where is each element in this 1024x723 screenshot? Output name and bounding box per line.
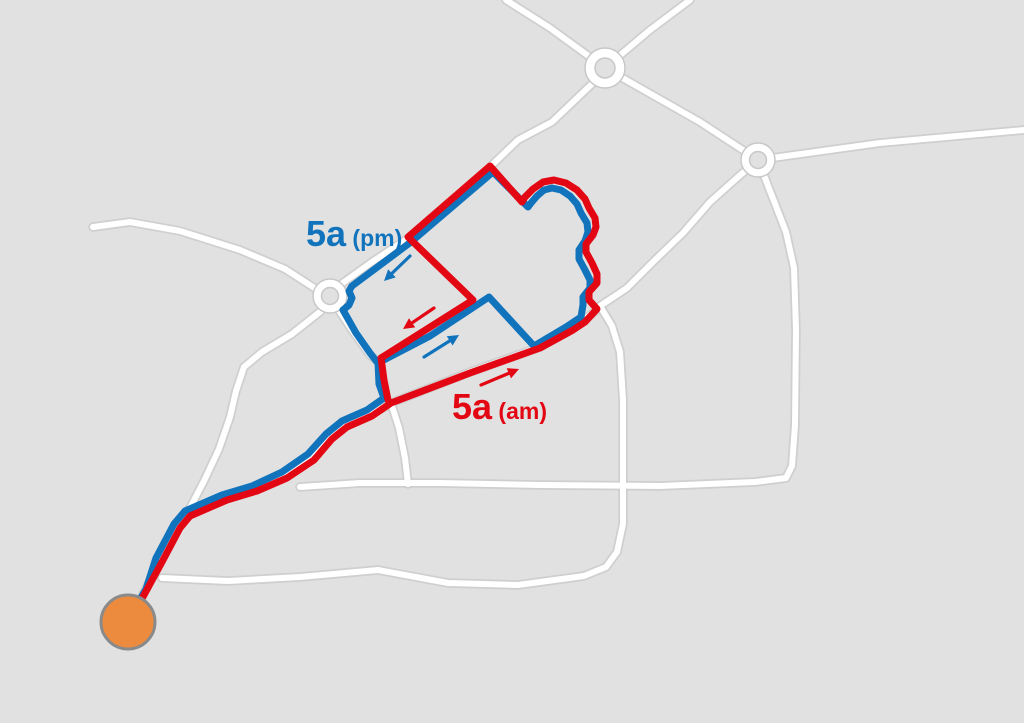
label-5a-am-main: 5a <box>452 386 493 427</box>
roundabout-left-island <box>322 288 339 305</box>
terminus-marker <box>101 595 155 649</box>
route-map: 5a (pm)5a (am) <box>0 0 1024 723</box>
label-5a-am-sub: (am) <box>492 398 547 424</box>
map-canvas: 5a (pm)5a (am) <box>0 0 1024 723</box>
label-5a-pm-main: 5a <box>306 213 347 254</box>
roundabout-right-island <box>750 152 767 169</box>
label-5a-pm-sub: (pm) <box>346 225 402 251</box>
roundabout-top-island <box>595 58 615 78</box>
